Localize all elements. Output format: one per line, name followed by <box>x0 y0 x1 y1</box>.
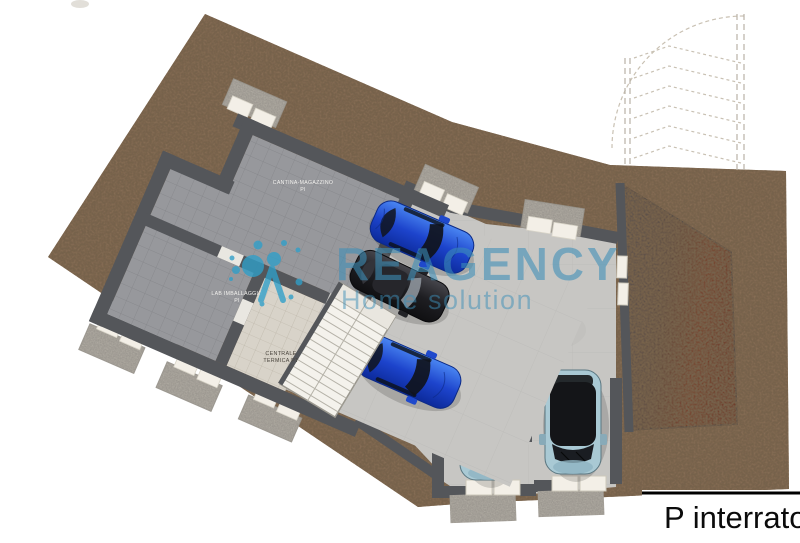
dashed-guide-right <box>737 14 744 170</box>
ramp-arc <box>612 16 744 148</box>
floor-title-box: P interrato <box>642 490 800 543</box>
watermark-tagline: Home solution <box>341 285 533 315</box>
floor-plan-canvas: CANTINA-MAGAZZINO PI LAB IMBALLAGGIO PI … <box>0 0 800 543</box>
floor-title-text: P interrato <box>664 500 800 535</box>
label-cantina-line1: CANTINA-MAGAZZINO <box>273 180 333 186</box>
gravel-apron-left <box>450 493 517 523</box>
ramp-chevrons <box>634 46 741 163</box>
bay-wall-bottom-mid <box>520 484 536 496</box>
gravel-apron-right <box>538 489 605 517</box>
edge-smudge <box>71 0 89 8</box>
label-lab-line1: LAB IMBALLAGGIO <box>211 291 262 297</box>
bay-wall-bottom-right <box>534 480 552 492</box>
watermark-brand: REAGENCY <box>336 238 621 290</box>
label-centrale-line1: CENTRALE <box>265 351 296 357</box>
label-lab-line2: PI <box>234 298 240 304</box>
dashed-guide-left <box>625 58 630 168</box>
upper-ramp-outline <box>612 14 744 170</box>
label-centrale-line2: TERMICA PT <box>263 358 299 364</box>
label-cantina-line2: PI <box>300 187 306 193</box>
bay-wall-right <box>610 378 622 484</box>
